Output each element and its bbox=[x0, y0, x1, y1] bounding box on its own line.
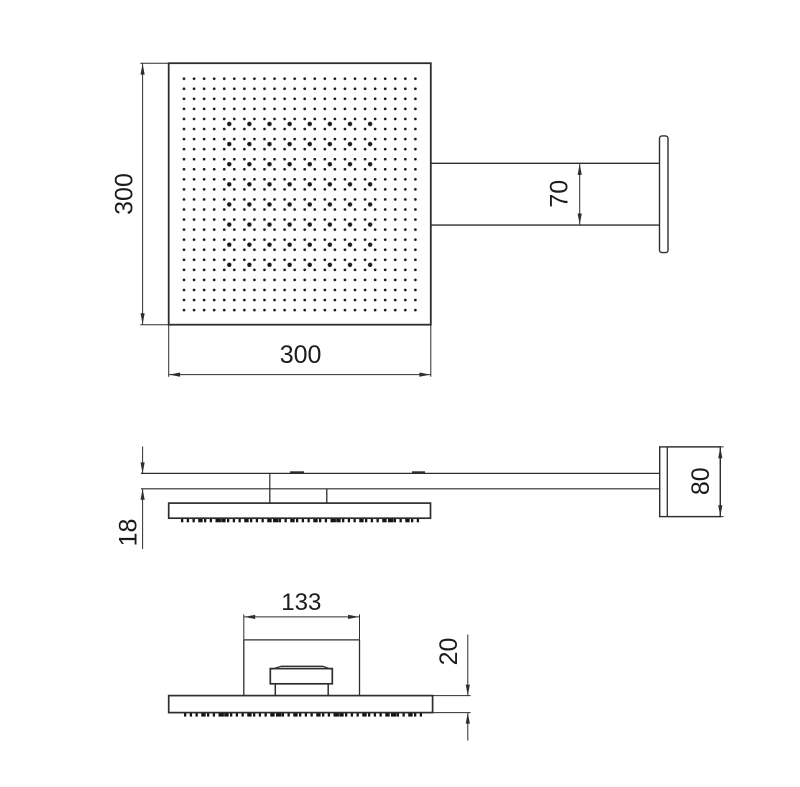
svg-text:300: 300 bbox=[110, 173, 138, 215]
svg-text:133: 133 bbox=[281, 589, 321, 616]
svg-text:70: 70 bbox=[546, 180, 574, 208]
svg-text:18: 18 bbox=[114, 519, 142, 547]
svg-text:300: 300 bbox=[280, 341, 322, 369]
svg-text:20: 20 bbox=[435, 638, 463, 666]
svg-text:80: 80 bbox=[687, 467, 715, 495]
